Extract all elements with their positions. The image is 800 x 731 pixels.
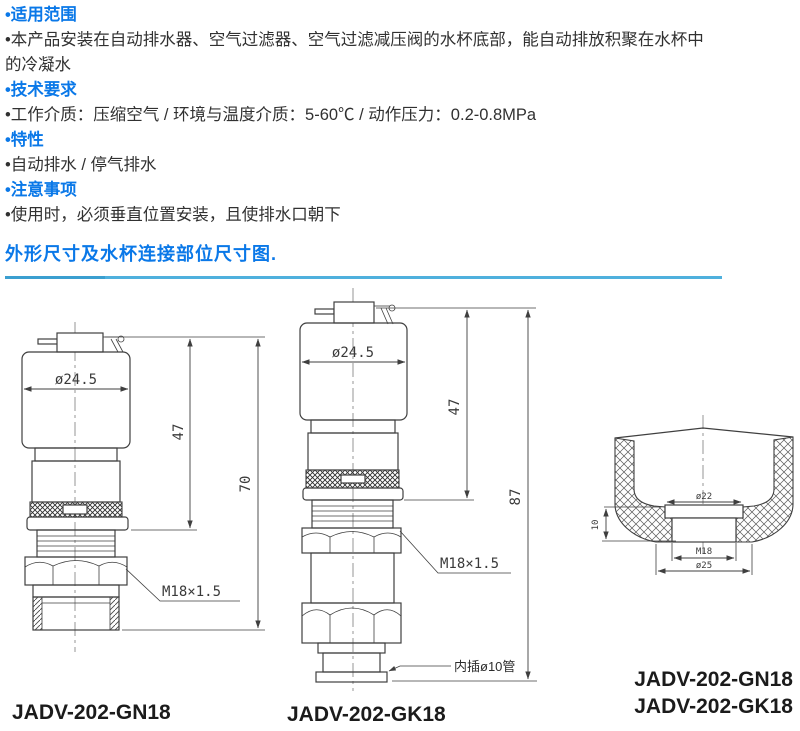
gn18-thread-dim: M18×1.5 bbox=[162, 584, 221, 600]
gk18-thread-dim: M18×1.5 bbox=[440, 556, 499, 572]
note-heading-tech: •技术要求 bbox=[5, 78, 705, 103]
gn18-hex-nut bbox=[25, 557, 127, 585]
cup-wall-left bbox=[615, 438, 672, 542]
gk18-bottom-flange bbox=[316, 672, 387, 682]
product-notes: •适用范围 •本产品安装在自动排水器、空气过滤器、空气过滤减压阀的水杯底部，能自… bbox=[5, 3, 705, 228]
gk18-thread-rings bbox=[312, 500, 393, 528]
gk18-tube-note-leader bbox=[389, 666, 451, 671]
gk18-tube-note: 内插ø10管 bbox=[454, 659, 515, 674]
gn18-70-dim: 70 bbox=[238, 476, 254, 493]
gn18-stub bbox=[33, 585, 119, 597]
gn18-thread-stub bbox=[33, 597, 119, 630]
gn18-diameter-dim: ø24.5 bbox=[55, 372, 97, 388]
note-body-precautions: •使用时，必须垂直位置安装，且使排水口朝下 bbox=[5, 203, 705, 228]
gn18-body bbox=[22, 352, 130, 448]
cup-wall-right bbox=[736, 437, 793, 542]
cup-bottom-dim: ø25 bbox=[696, 561, 712, 571]
gn18-knurl-slot bbox=[63, 505, 87, 514]
cup-boss-flange bbox=[665, 505, 743, 518]
gn18-pin bbox=[38, 339, 58, 344]
gn18-cap bbox=[57, 333, 103, 352]
cup-top-dim: ø22 bbox=[696, 492, 712, 502]
gn18-mid-section bbox=[32, 461, 120, 502]
note-heading-scope: •适用范围 bbox=[5, 3, 705, 28]
cup-part-label-gn18: JADV-202-GN18 bbox=[634, 668, 793, 691]
gk18-cap bbox=[334, 302, 374, 323]
gk18-tube bbox=[323, 653, 380, 672]
cup-section-drawing: ø22 M18 ø25 10 JADV-202-GN18 JADV-202-GK… bbox=[591, 415, 793, 718]
cup-rim bbox=[615, 428, 793, 438]
cup-thread-dim: M18 bbox=[696, 547, 712, 557]
note-body-scope: •本产品安装在自动排水器、空气过滤器、空气过滤减压阀的水杯底部，能自动排放积聚在… bbox=[5, 28, 705, 78]
gk18-part-label: JADV-202-GK18 bbox=[287, 703, 446, 726]
gn18-47-dim: 47 bbox=[171, 424, 187, 441]
note-heading-precautions: •注意事项 bbox=[5, 178, 705, 203]
gk18-hex-nut-upper bbox=[302, 528, 401, 553]
note-heading-features: •特性 bbox=[5, 128, 705, 153]
section-title: 外形尺寸及水杯连接部位尺寸图. bbox=[5, 240, 277, 266]
gn18-thread-rings bbox=[37, 530, 115, 557]
gk18-drawing: ø24.5 bbox=[287, 288, 537, 726]
gk18-step bbox=[318, 643, 385, 653]
gn18-neck bbox=[35, 448, 117, 461]
gk18-87-dim: 87 bbox=[508, 489, 524, 506]
gn18-drawing: ø24.5 bbox=[12, 322, 265, 724]
gk18-diameter-dim: ø24.5 bbox=[332, 345, 374, 361]
note-body-features: •自动排水 / 停气排水 bbox=[5, 153, 705, 178]
cup-depth-dim: 10 bbox=[591, 520, 601, 531]
note-body-tech: •工作介质：压缩空气 / 环境与温度介质：5-60℃ / 动作压力：0.2-0.… bbox=[5, 103, 705, 128]
gk18-hex-nut-lower bbox=[302, 603, 401, 643]
cup-part-label-gk18: JADV-202-GK18 bbox=[634, 695, 793, 718]
gk18-47-dim: 47 bbox=[447, 399, 463, 416]
gk18-body bbox=[300, 323, 407, 420]
gn18-part-label: JADV-202-GN18 bbox=[12, 701, 171, 724]
gk18-knurl-slot bbox=[341, 475, 365, 483]
gn18-flange bbox=[27, 517, 128, 530]
gn18-clip bbox=[103, 336, 124, 352]
dimension-diagram: ø24.5 bbox=[0, 271, 800, 731]
cup-boss-body bbox=[672, 518, 736, 542]
gk18-pin bbox=[315, 309, 334, 314]
gk18-lower-body bbox=[311, 553, 394, 603]
